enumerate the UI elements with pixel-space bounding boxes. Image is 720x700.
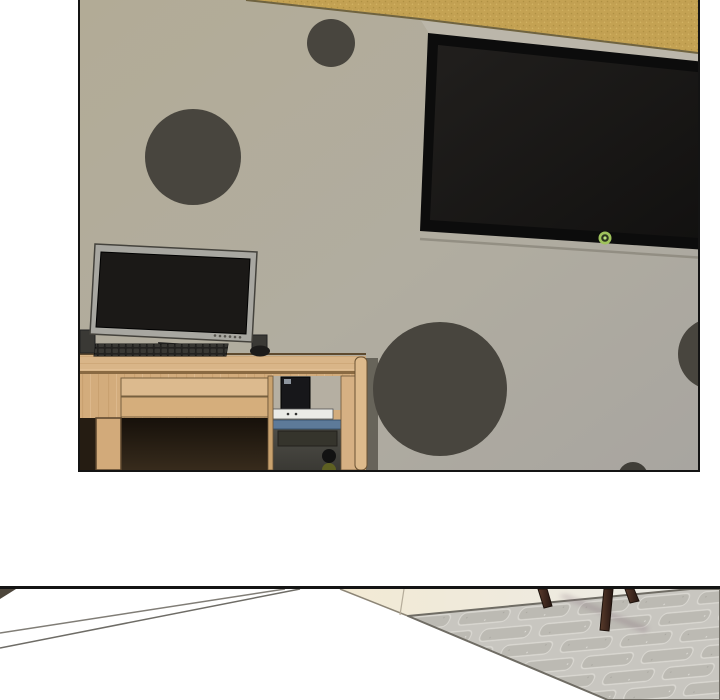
desk-right-rounded-edge [355, 357, 367, 470]
bedroom-scene [80, 0, 698, 470]
desk-drawer-lower [121, 397, 268, 417]
desk-left-leg [96, 418, 121, 470]
desk-front-edge [80, 371, 366, 374]
comic-panel-2 [0, 586, 720, 700]
desk-tabletop [80, 355, 366, 371]
floor-scene [0, 589, 720, 700]
media-player [273, 409, 333, 419]
keyboard-keys [94, 344, 228, 356]
comic-panel-1 [78, 0, 700, 472]
pc-tower-drive-bay [278, 431, 337, 446]
tv-screen [430, 45, 698, 238]
wall-dot-large-center [373, 322, 507, 456]
monitor-screen [96, 252, 250, 334]
pc-tower-power-button [322, 449, 336, 463]
desk-drawer-upper [121, 378, 268, 396]
desk-left-shadow [80, 418, 96, 470]
game-console-label [284, 379, 291, 384]
pc-tower-stripe [272, 420, 341, 429]
desk-interior-shadow [121, 418, 271, 470]
media-player-button-1 [287, 413, 290, 416]
tv-power-light-dot [603, 236, 606, 239]
mouse [250, 346, 270, 357]
desk-divider [268, 376, 273, 470]
wall-dot-large-left [145, 109, 241, 205]
comic-page [0, 0, 720, 700]
media-player-button-2 [295, 413, 298, 416]
wall-dot-small-top [307, 19, 355, 67]
